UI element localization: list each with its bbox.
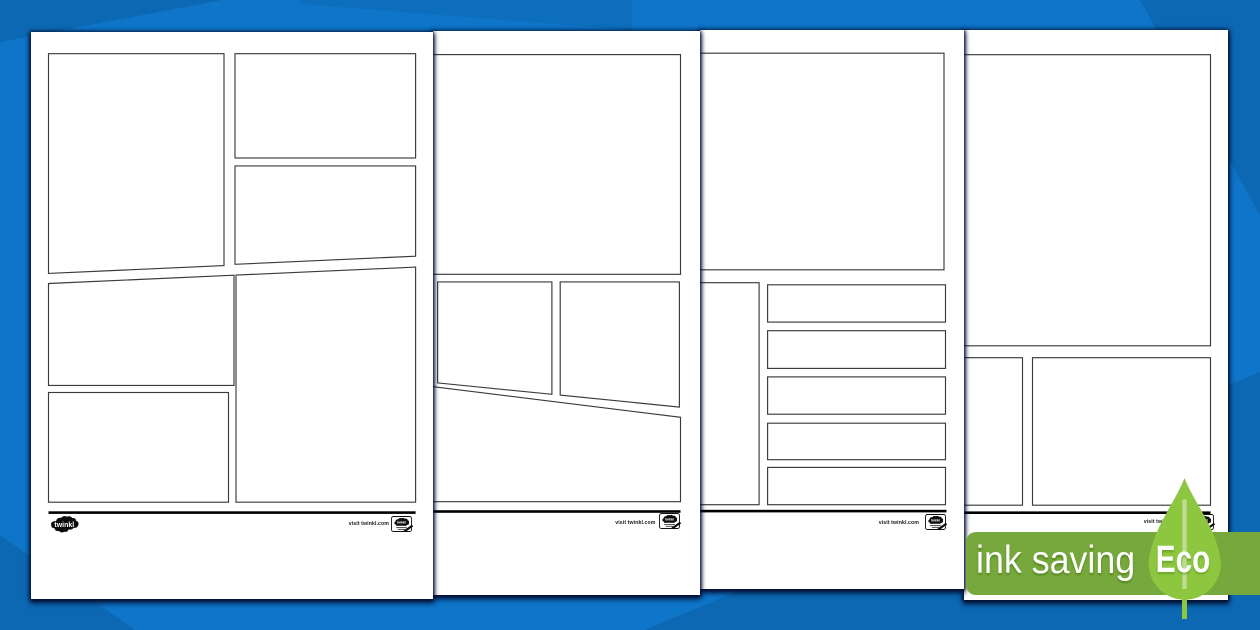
- svg-text:twinkl: twinkl: [931, 518, 940, 522]
- svg-text:twinkl: twinkl: [54, 521, 74, 528]
- svg-text:twinkl: twinkl: [397, 520, 406, 524]
- svg-text:twinkl: twinkl: [665, 518, 674, 522]
